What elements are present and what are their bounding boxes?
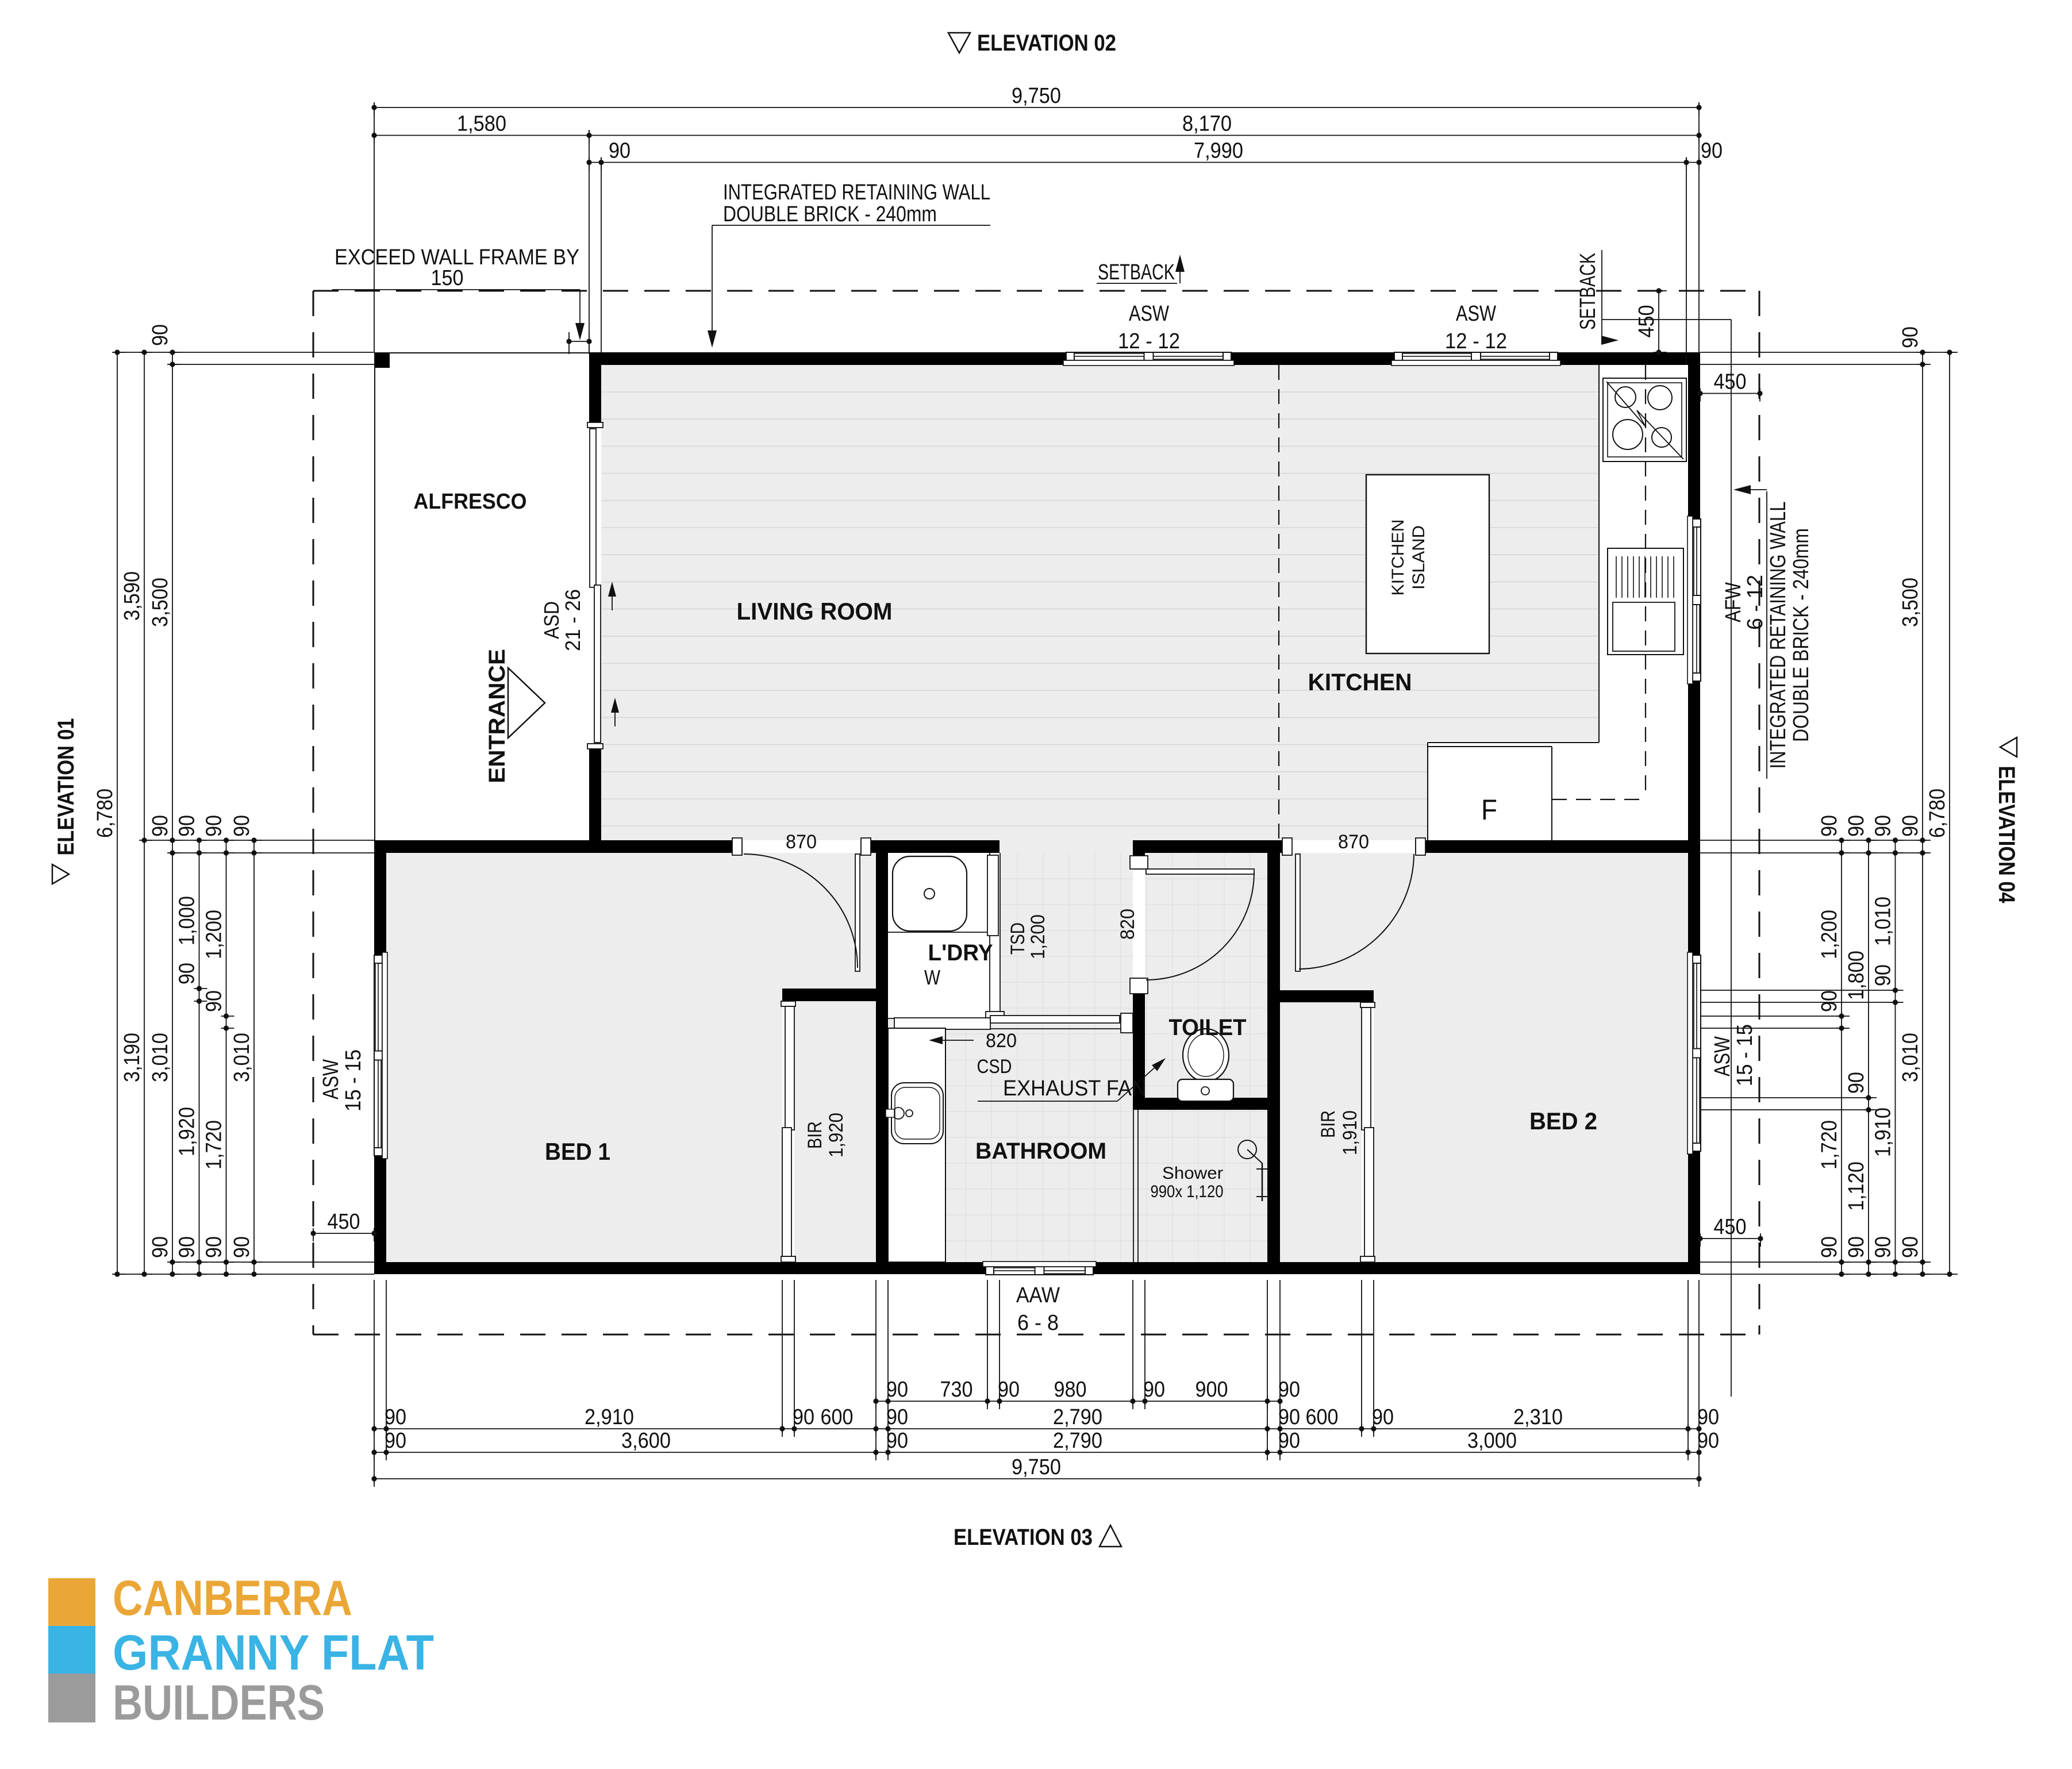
svg-text:90: 90 [1898, 326, 1923, 348]
svg-text:15 - 15: 15 - 15 [1733, 1024, 1757, 1086]
svg-text:ENTRANCE: ENTRANCE [485, 649, 510, 783]
svg-text:6 - 8: 6 - 8 [1017, 1311, 1059, 1335]
svg-text:1,000: 1,000 [175, 896, 199, 945]
svg-text:1,800: 1,800 [1844, 951, 1869, 1000]
svg-text:ASW: ASW [319, 1059, 343, 1099]
svg-text:2,790: 2,790 [1053, 1405, 1102, 1429]
svg-text:3,500: 3,500 [1898, 578, 1923, 627]
svg-text:KITCHEN: KITCHEN [1389, 520, 1408, 596]
svg-text:600: 600 [821, 1405, 854, 1429]
svg-text:820: 820 [986, 1030, 1017, 1052]
svg-text:90: 90 [202, 815, 226, 837]
svg-text:820: 820 [1117, 909, 1139, 940]
svg-text:90: 90 [609, 139, 631, 163]
svg-text:BED 2: BED 2 [1529, 1107, 1597, 1135]
svg-text:90: 90 [202, 1236, 226, 1258]
svg-text:12 - 12: 12 - 12 [1445, 329, 1507, 353]
svg-text:3,010: 3,010 [148, 1033, 172, 1082]
svg-text:90: 90 [385, 1429, 406, 1453]
svg-text:INTEGRATED RETAINING WALL: INTEGRATED RETAINING WALL [1766, 502, 1790, 769]
svg-text:BIR: BIR [804, 1121, 826, 1149]
svg-text:1,910: 1,910 [1339, 1110, 1361, 1155]
svg-text:Shower: Shower [1162, 1164, 1223, 1183]
svg-text:BIR: BIR [1317, 1110, 1339, 1138]
svg-text:W: W [924, 966, 940, 989]
svg-text:9,750: 9,750 [1012, 1455, 1061, 1479]
svg-text:980: 980 [1054, 1378, 1087, 1402]
svg-text:1,720: 1,720 [1817, 1120, 1842, 1170]
svg-text:AFW: AFW [1721, 582, 1746, 622]
svg-text:6,780: 6,780 [1925, 789, 1950, 838]
svg-text:90: 90 [886, 1429, 908, 1453]
svg-text:LIVING ROOM: LIVING ROOM [737, 598, 893, 625]
svg-text:GRANNY FLAT: GRANNY FLAT [113, 1625, 434, 1680]
svg-text:2,310: 2,310 [1513, 1405, 1563, 1429]
svg-text:12 - 12: 12 - 12 [1118, 329, 1180, 353]
svg-text:BATHROOM: BATHROOM [975, 1139, 1106, 1164]
svg-text:ELEVATION 04: ELEVATION 04 [1994, 766, 2019, 904]
svg-text:ALFRESCO: ALFRESCO [414, 490, 527, 514]
svg-text:3,590: 3,590 [120, 571, 144, 621]
svg-text:90: 90 [1844, 815, 1869, 837]
svg-text:90: 90 [1701, 139, 1723, 163]
svg-text:1,720: 1,720 [202, 1120, 226, 1170]
svg-text:90: 90 [202, 990, 226, 1012]
svg-text:870: 870 [1338, 831, 1369, 853]
svg-text:450: 450 [328, 1210, 360, 1234]
svg-text:CSD: CSD [977, 1056, 1012, 1078]
svg-text:90: 90 [1143, 1378, 1165, 1402]
svg-text:450: 450 [1635, 305, 1659, 338]
svg-text:1,120: 1,120 [1844, 1162, 1869, 1211]
svg-text:1,920: 1,920 [825, 1113, 847, 1157]
svg-text:3,600: 3,600 [621, 1429, 671, 1453]
svg-text:ELEVATION 02: ELEVATION 02 [977, 30, 1116, 56]
svg-text:90: 90 [1871, 1236, 1896, 1258]
svg-text:90: 90 [1898, 815, 1923, 837]
svg-text:990x 1,120: 990x 1,120 [1151, 1182, 1224, 1201]
svg-text:ASW: ASW [1456, 302, 1496, 326]
svg-text:90: 90 [230, 815, 254, 837]
svg-text:90: 90 [1871, 964, 1896, 986]
svg-text:90: 90 [1697, 1405, 1719, 1429]
svg-text:90: 90 [1817, 990, 1842, 1012]
svg-text:450: 450 [1714, 370, 1747, 394]
svg-text:ASW: ASW [1129, 302, 1169, 326]
svg-text:90: 90 [886, 1405, 908, 1429]
svg-text:1,910: 1,910 [1871, 1107, 1896, 1157]
svg-text:90: 90 [1898, 1236, 1923, 1258]
svg-text:90: 90 [175, 963, 199, 985]
svg-text:1,200: 1,200 [1817, 910, 1842, 959]
svg-text:150: 150 [431, 266, 464, 290]
svg-text:90: 90 [1871, 815, 1896, 837]
svg-text:3,190: 3,190 [120, 1033, 144, 1082]
svg-text:ELEVATION 03: ELEVATION 03 [954, 1525, 1093, 1550]
svg-text:3,500: 3,500 [148, 578, 172, 627]
svg-text:90: 90 [148, 1236, 172, 1258]
svg-text:2,790: 2,790 [1053, 1429, 1102, 1453]
svg-text:90: 90 [1844, 1236, 1869, 1258]
svg-text:DOUBLE BRICK - 240mm: DOUBLE BRICK - 240mm [723, 202, 937, 226]
svg-text:6 - 12: 6 - 12 [1743, 575, 1767, 630]
svg-text:21 - 26: 21 - 26 [561, 589, 585, 651]
svg-text:90: 90 [148, 815, 172, 837]
svg-text:6,780: 6,780 [93, 789, 117, 838]
svg-text:90: 90 [886, 1378, 908, 1402]
svg-text:8,170: 8,170 [1182, 112, 1232, 136]
svg-text:90: 90 [1844, 1072, 1869, 1094]
svg-text:1,010: 1,010 [1871, 897, 1896, 946]
svg-text:3,010: 3,010 [230, 1033, 254, 1082]
svg-text:BUILDERS: BUILDERS [113, 1675, 325, 1730]
svg-text:EXHAUST FAN: EXHAUST FAN [1003, 1076, 1147, 1101]
svg-text:ELEVATION 01: ELEVATION 01 [53, 718, 79, 856]
svg-text:TSD: TSD [1007, 922, 1029, 955]
svg-text:90: 90 [148, 324, 172, 346]
svg-text:90: 90 [1817, 815, 1842, 837]
svg-text:7,990: 7,990 [1194, 139, 1243, 163]
svg-text:90: 90 [1697, 1429, 1719, 1453]
svg-text:90: 90 [175, 1236, 199, 1258]
svg-text:90: 90 [1278, 1378, 1300, 1402]
svg-text:90: 90 [230, 1236, 254, 1258]
svg-text:730: 730 [940, 1378, 973, 1402]
svg-text:ASD: ASD [540, 601, 563, 639]
svg-text:90: 90 [1817, 1236, 1842, 1258]
svg-text:3,010: 3,010 [1898, 1033, 1923, 1082]
svg-text:INTEGRATED RETAINING WALL: INTEGRATED RETAINING WALL [723, 180, 990, 205]
svg-text:90: 90 [1278, 1405, 1300, 1429]
svg-text:DOUBLE BRICK - 240mm: DOUBLE BRICK - 240mm [1789, 528, 1813, 742]
svg-text:90: 90 [1372, 1405, 1394, 1429]
svg-text:L'DRY: L'DRY [928, 940, 993, 966]
svg-text:1,920: 1,920 [175, 1107, 199, 1156]
svg-text:15 - 15: 15 - 15 [341, 1049, 366, 1112]
svg-text:ASW: ASW [1710, 1036, 1735, 1076]
svg-text:2,910: 2,910 [585, 1405, 634, 1429]
svg-text:3,000: 3,000 [1467, 1429, 1517, 1453]
svg-text:90: 90 [1278, 1429, 1300, 1453]
svg-text:ISLAND: ISLAND [1409, 525, 1428, 590]
svg-text:600: 600 [1306, 1405, 1339, 1429]
svg-text:SETBACK: SETBACK [1576, 253, 1600, 330]
svg-text:90: 90 [793, 1405, 814, 1429]
svg-text:450: 450 [1714, 1215, 1747, 1239]
svg-text:90: 90 [175, 815, 199, 837]
svg-text:CANBERRA: CANBERRA [113, 1571, 352, 1626]
svg-text:870: 870 [786, 831, 817, 853]
svg-text:90: 90 [385, 1405, 406, 1429]
svg-text:BED 1: BED 1 [545, 1138, 610, 1165]
svg-text:90: 90 [998, 1378, 1020, 1402]
svg-text:900: 900 [1195, 1378, 1228, 1402]
svg-text:1,200: 1,200 [1027, 914, 1049, 959]
svg-text:9,750: 9,750 [1012, 84, 1061, 108]
svg-text:TOILET: TOILET [1169, 1015, 1247, 1040]
svg-text:F: F [1481, 794, 1497, 826]
svg-text:1,580: 1,580 [457, 112, 506, 136]
svg-text:KITCHEN: KITCHEN [1308, 668, 1412, 695]
svg-text:AAW: AAW [1016, 1283, 1060, 1307]
svg-text:SETBACK: SETBACK [1098, 260, 1175, 284]
svg-text:1,200: 1,200 [202, 910, 226, 959]
